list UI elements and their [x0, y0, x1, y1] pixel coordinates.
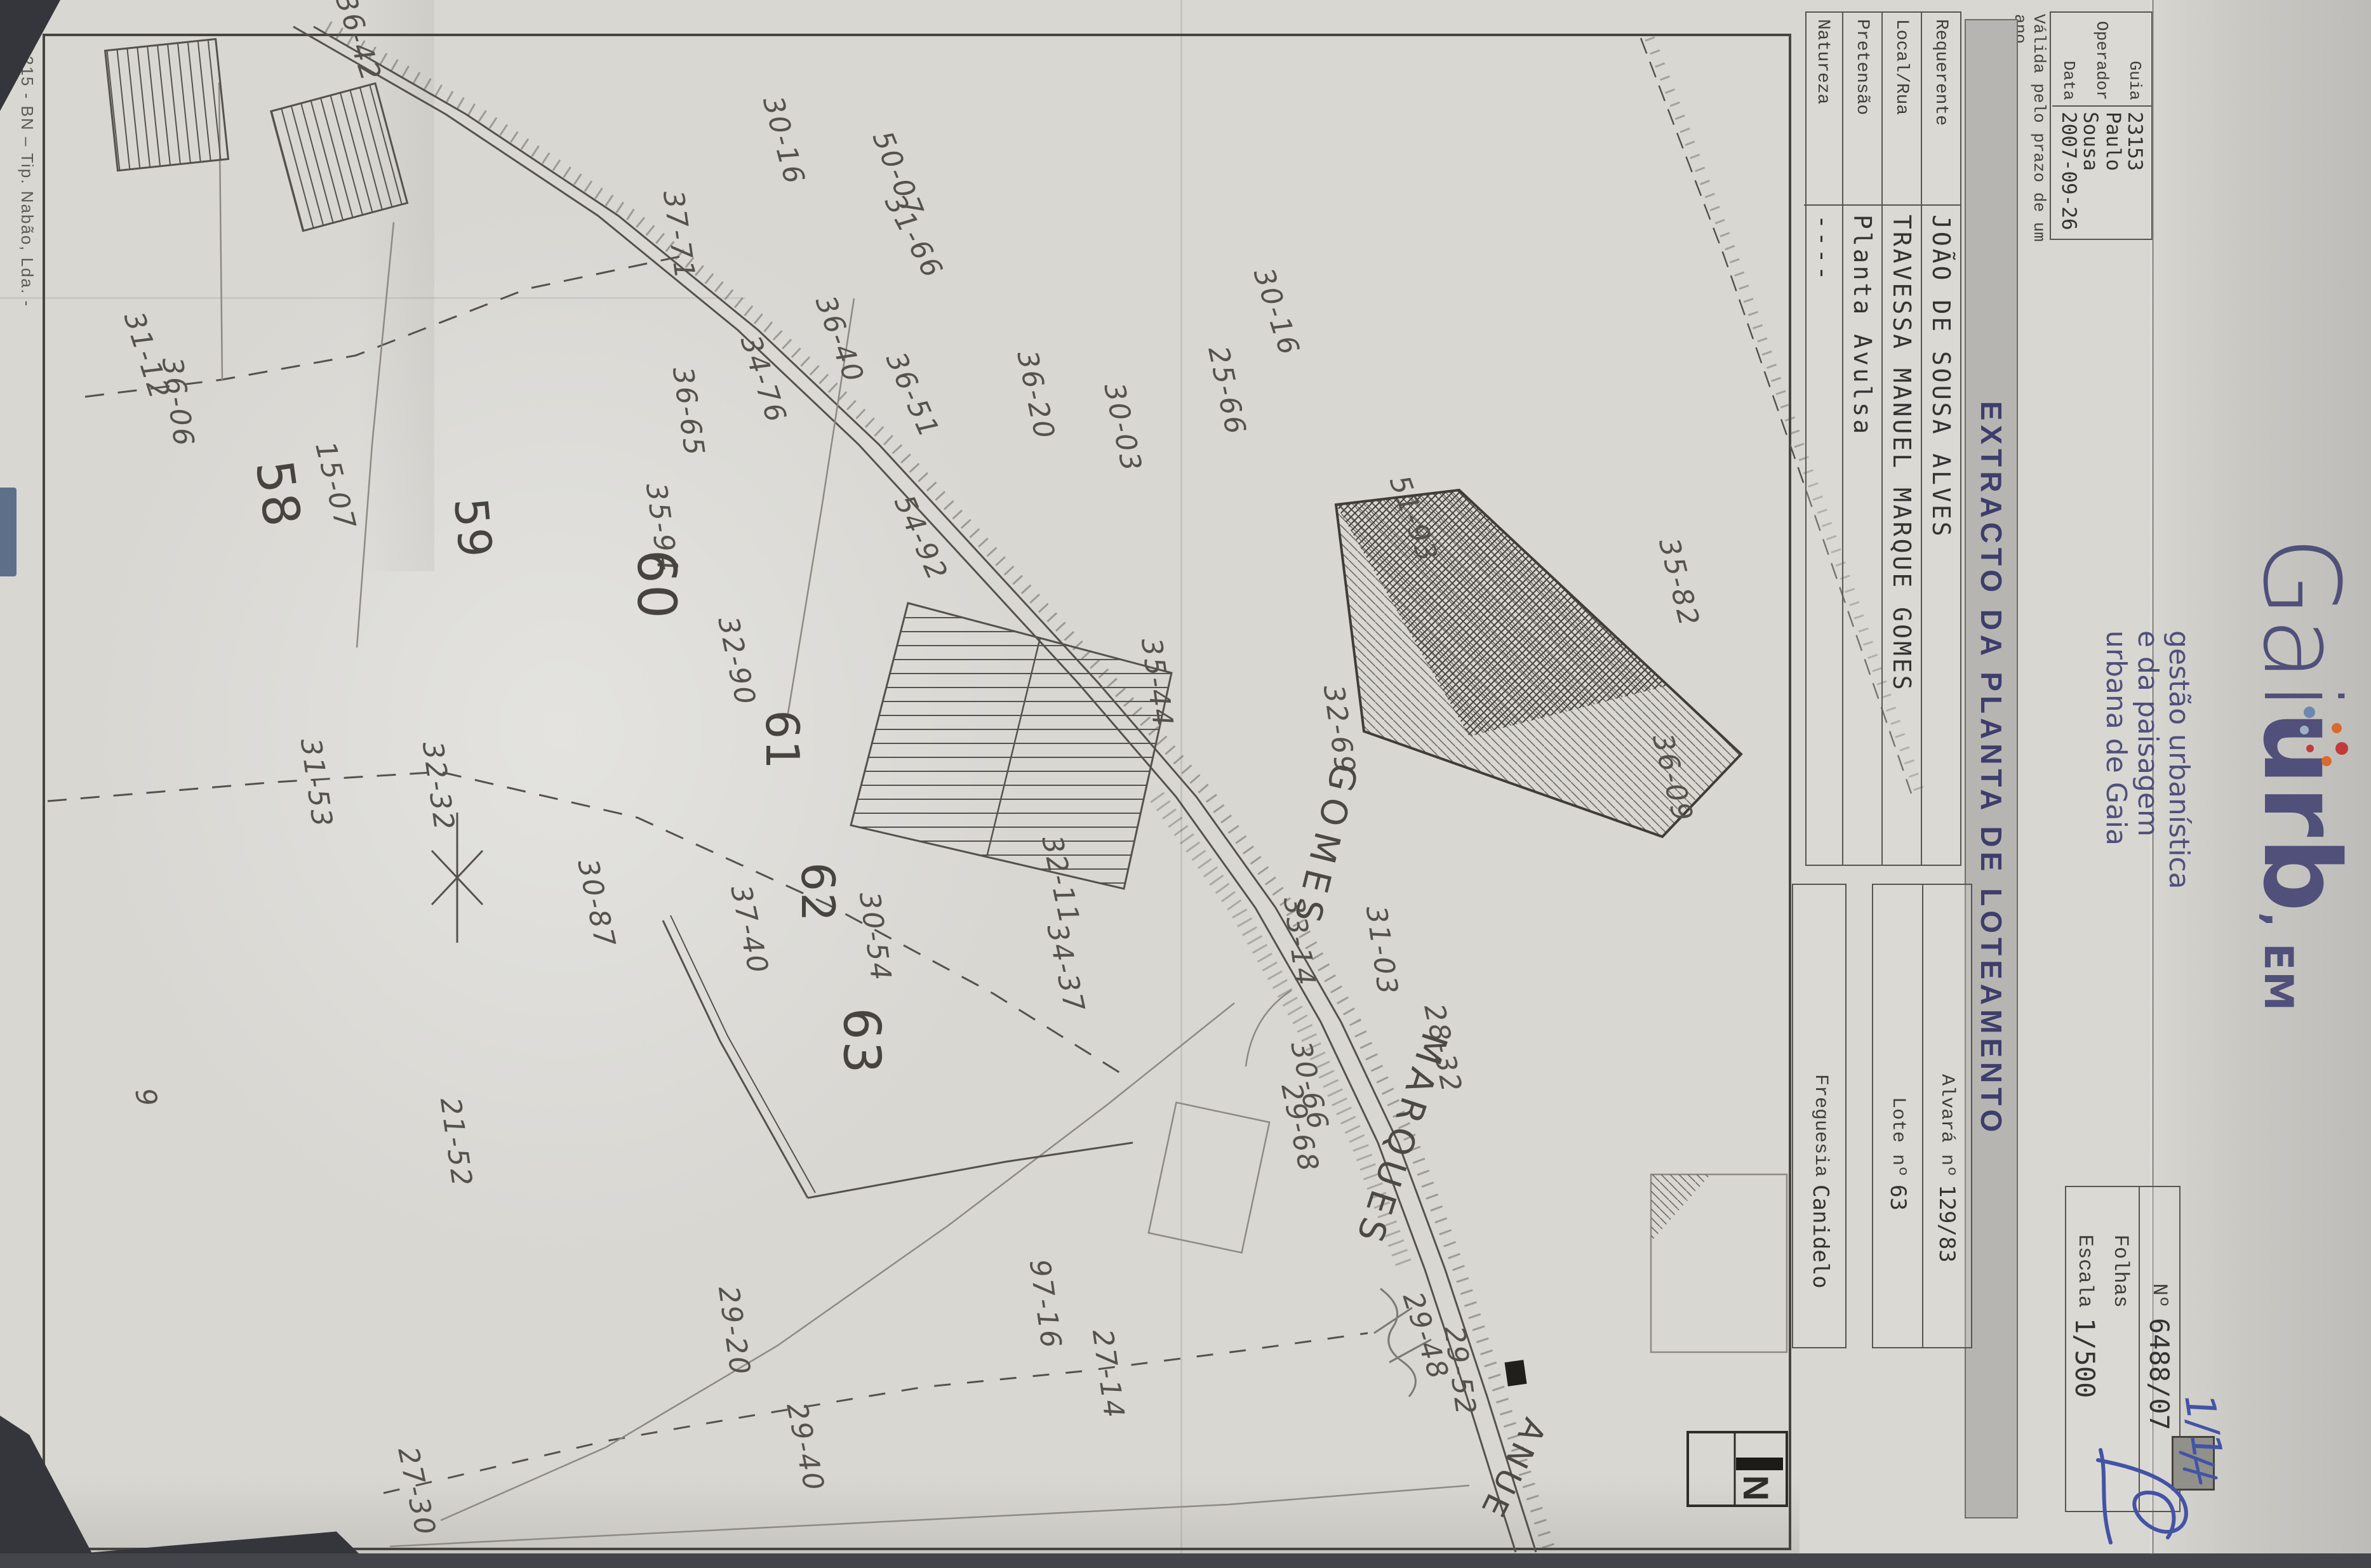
field-label: Freguesia: [1810, 885, 1831, 1185]
field-value: 63: [1886, 1185, 1911, 1347]
handwritten-signature: [2085, 1441, 2225, 1568]
logo-wordmark: Gaiurb, EM: [2248, 536, 2353, 1108]
table-row: Data 2007-09-26: [2052, 13, 2085, 239]
field-label: Guia: [2125, 13, 2144, 105]
request-table: Requerente JOÃO DE SOUSA ALVES Local/Rua…: [1805, 11, 1961, 866]
gaiurb-logo: Gaiurb, EM gestão urbanística e da paisa…: [2163, 536, 2353, 1108]
parish-table: Freguesia Canidelo: [1792, 884, 1847, 1348]
field-value: Canidelo: [1808, 1185, 1833, 1347]
table-row: Operador Paulo Sousa: [2085, 13, 2118, 239]
field-value: 2007-09-26: [2052, 105, 2085, 239]
permit-table: Alvará nº 129/83 Lote nº 63: [1872, 884, 1972, 1348]
field-label: Local/Rua: [1892, 13, 1912, 204]
building-outline: [1149, 1103, 1269, 1253]
field-label: Folhas: [2109, 1187, 2133, 1314]
field-label: Lote nº: [1888, 885, 1909, 1185]
logo-dot-icon: [2321, 756, 2332, 766]
building-hatched: [271, 83, 408, 230]
field-value: Paulo Sousa: [2085, 105, 2118, 239]
logo-dot-icon: [2304, 707, 2315, 718]
lot-corner-hatch: [1651, 1174, 1711, 1242]
table-row: Freguesia Canidelo: [1796, 885, 1845, 1347]
north-indicator: N: [1688, 1432, 1787, 1506]
field-value: ----: [1804, 204, 1842, 865]
field-value: 129/83: [1935, 1185, 1960, 1347]
guide-table: Guia 23153 Operador Paulo Sousa Data 200…: [2050, 11, 2153, 240]
field-label: Nº: [2148, 1187, 2172, 1314]
logo-dot-icon: [2300, 726, 2309, 734]
lot-boundary: [663, 920, 808, 1198]
road-junction-curve: [1246, 990, 1292, 1066]
road-line: [441, 1003, 1234, 1520]
svg-text:N: N: [1736, 1475, 1776, 1501]
lot-number-label: 60: [625, 550, 688, 620]
table-row: Natureza ----: [1804, 13, 1842, 865]
field-label: Escala: [2074, 1187, 2097, 1314]
field-label: Natureza: [1813, 13, 1833, 204]
field-label: Requerente: [1932, 13, 1951, 204]
road-line: [390, 1485, 1469, 1546]
lot-boundary: [357, 222, 394, 648]
logo-tagline: gestão urbanística e da paisagem urbana …: [2101, 630, 2194, 889]
logo-dot-icon: [2335, 742, 2348, 755]
table-row: Requerente JOÃO DE SOUSA ALVES: [1921, 13, 1960, 865]
table-row: Pretensão Planta Avulsa: [1842, 13, 1881, 865]
lot-number-label: 58: [244, 456, 312, 531]
lot-number-label: 62: [791, 862, 845, 923]
table-row: Local/Rua TRAVESSA MANUEL MARQUE GOMES: [1881, 13, 1921, 865]
field-value: TRAVESSA MANUEL MARQUE GOMES: [1883, 204, 1921, 865]
table-row: Lote nº 63: [1874, 885, 1922, 1347]
building-hatched: [105, 39, 229, 171]
document-title-bar: EXTRACTO DA PLANTA DE LOTEAMENTO: [1965, 19, 2018, 1518]
field-label: Operador: [2092, 13, 2111, 105]
field-value: Planta Avulsa: [1843, 204, 1881, 865]
field-value: JOÃO DE SOUSA ALVES: [1922, 204, 1960, 865]
building-hatched: [851, 603, 1172, 889]
lot-number-label: 59: [444, 496, 502, 561]
field-label: Pretensão: [1853, 13, 1873, 204]
document-title: EXTRACTO DA PLANTA DE LOTEAMENTO: [1974, 401, 2008, 1137]
blue-tape: [0, 488, 17, 576]
field-label: Data: [2059, 13, 2078, 105]
logo-dots-icon: [2278, 700, 2348, 776]
logo-dot-icon: [2332, 723, 2342, 733]
boundary-dashed-line: [384, 1333, 1368, 1493]
lot-number-label: 63: [832, 1007, 892, 1075]
black-mark: [1505, 1360, 1527, 1386]
lot-boundary: [808, 1143, 1133, 1198]
photo-canvas: N Guia 23153 Operador Paulo Sousa Data 2…: [0, 0, 2371, 1553]
printer-note: 215 - BN – Tip. Nabão, Lda. -: [17, 56, 37, 307]
lot-number-label: 61: [756, 710, 809, 771]
document-paper: N Guia 23153 Operador Paulo Sousa Data 2…: [0, 0, 2371, 1553]
table-row: Alvará nº 129/83: [1922, 885, 1971, 1347]
logo-dot-icon: [2306, 745, 2314, 752]
field-label: Alvará nº: [1937, 885, 1958, 1185]
